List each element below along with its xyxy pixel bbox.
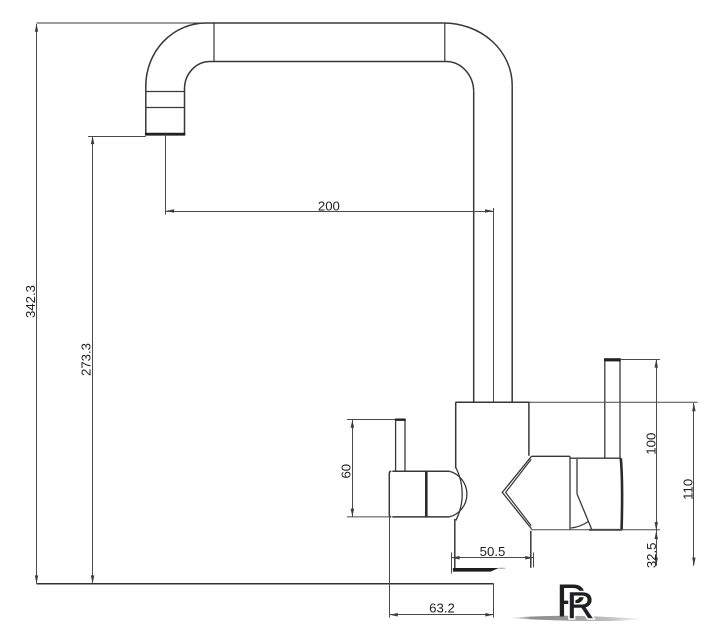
svg-text:100: 100 [644,433,659,455]
svg-text:200: 200 [318,198,340,213]
svg-text:32.5: 32.5 [644,542,659,568]
svg-text:273.3: 273.3 [79,343,94,376]
svg-text:342.3: 342.3 [23,285,38,318]
svg-text:R: R [567,584,594,626]
svg-text:60: 60 [339,464,354,479]
svg-text:63.2: 63.2 [429,601,455,616]
svg-text:50.5: 50.5 [480,544,506,559]
svg-text:110: 110 [681,479,696,500]
